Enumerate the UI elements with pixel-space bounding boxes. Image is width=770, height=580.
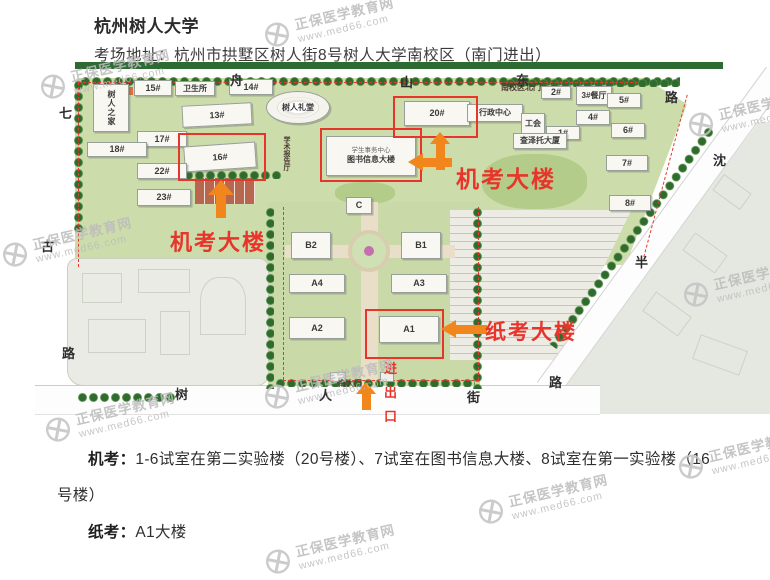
building-树人之家: 树人之家 (93, 84, 129, 132)
neighbor-parcel-west (67, 258, 269, 386)
building-B2: B2 (291, 232, 331, 259)
highlight-A1 (365, 309, 444, 359)
jikao-note-2: 机考大楼 (456, 160, 556, 194)
road-label-山: 山 (400, 72, 413, 91)
building-树人礼堂: 树人礼堂 (266, 91, 330, 124)
note-paper-exam-label: 纸考： (88, 524, 135, 541)
zhikao-note: 纸考大楼 (485, 316, 577, 346)
building-4#: 4# (576, 110, 610, 125)
road-label-树: 树 (175, 384, 188, 403)
left-arrow-icon (408, 153, 452, 171)
building-2#: 2# (541, 86, 571, 99)
road-label-路: 路 (62, 343, 75, 362)
road-label-沈: 沈 (713, 150, 726, 169)
building-15#: 15# (134, 80, 172, 96)
up-arrow-icon (356, 382, 376, 410)
up-arrow-icon (208, 180, 234, 218)
left-arrow-icon (441, 320, 487, 338)
building-A4: A4 (289, 274, 345, 293)
road-label-七: 七 (59, 103, 72, 122)
campus-boundary (78, 82, 79, 267)
note-paper-exam-text: A1大楼 (135, 524, 186, 541)
building-18#: 18# (87, 142, 147, 157)
building-5#: 5# (607, 93, 641, 108)
road-label-路: 路 (549, 372, 562, 391)
tree-row (77, 392, 177, 403)
building-A2: A2 (289, 317, 345, 339)
gate-inout-label: 进出口 (384, 358, 397, 425)
building-13#: 13# (181, 102, 252, 128)
building-6#: 6# (611, 123, 645, 138)
note-computer-exam: 机考：1-6试室在第二实验楼（20号楼）、7试室在图书信息大楼、8试室在第一实验… (57, 442, 719, 514)
watermark-text: 正保医学教育网 (292, 0, 395, 34)
med66-logo-icon (0, 238, 31, 270)
north-greenbelt (75, 62, 723, 69)
road-label-街: 街 (467, 387, 480, 406)
building-8#: 8# (609, 195, 651, 211)
tree-row (472, 207, 482, 389)
watermark-url: www.med66.com (711, 443, 770, 478)
note-computer-exam-label: 机考： (88, 451, 135, 468)
gate-inout-char: 进 (384, 358, 397, 377)
page-title: 杭州树人大学 (94, 12, 199, 37)
note-computer-exam-text: 1-6试室在第二实验楼（20号楼）、7试室在图书信息大楼、8试室在第一实验楼（1… (57, 451, 710, 504)
note-paper-exam: 纸考：A1大楼 (57, 515, 719, 551)
plaza-fountain (364, 246, 374, 256)
campus-boundary (478, 207, 479, 380)
med66-logo-icon (42, 413, 74, 445)
campus-boundary (283, 207, 284, 380)
road-label-古: 古 (41, 236, 54, 255)
building-A3: A3 (391, 274, 447, 293)
gate-inout-char: 出 (384, 382, 397, 401)
tree-row (265, 207, 274, 389)
road-label-舟: 舟 (230, 70, 243, 89)
highlight-16 (178, 133, 266, 181)
map-label-南校区北门: 南校区北门 (501, 82, 541, 93)
building-B1: B1 (401, 232, 441, 259)
building-C: C (346, 197, 372, 214)
exam-notes: 机考：1-6试室在第二实验楼（20号楼）、7试室在图书信息大楼、8试室在第一实验… (57, 442, 719, 552)
road-label-半: 半 (635, 252, 648, 271)
jikao-note-1: 机考大楼 (170, 225, 266, 257)
campus-map: 树人之家15#卫生所14#13#17#18#16#22#23#树人礼堂学生事务中… (35, 62, 770, 414)
building-23#: 23# (137, 189, 191, 206)
building-工会: 工会 (521, 113, 545, 135)
building-卫生所: 卫生所 (175, 81, 215, 96)
highlight-library (320, 128, 422, 182)
map-label-学术报告厅: 学术报告厅 (281, 136, 291, 171)
watermark-url: www.med66.com (297, 11, 399, 46)
road-label-路: 路 (665, 87, 678, 106)
building-查泽托大厦: 查泽托大厦 (513, 133, 567, 149)
building-7#: 7# (606, 155, 648, 171)
road-label-人: 人 (319, 385, 332, 404)
gate-inout-char: 口 (384, 406, 397, 425)
